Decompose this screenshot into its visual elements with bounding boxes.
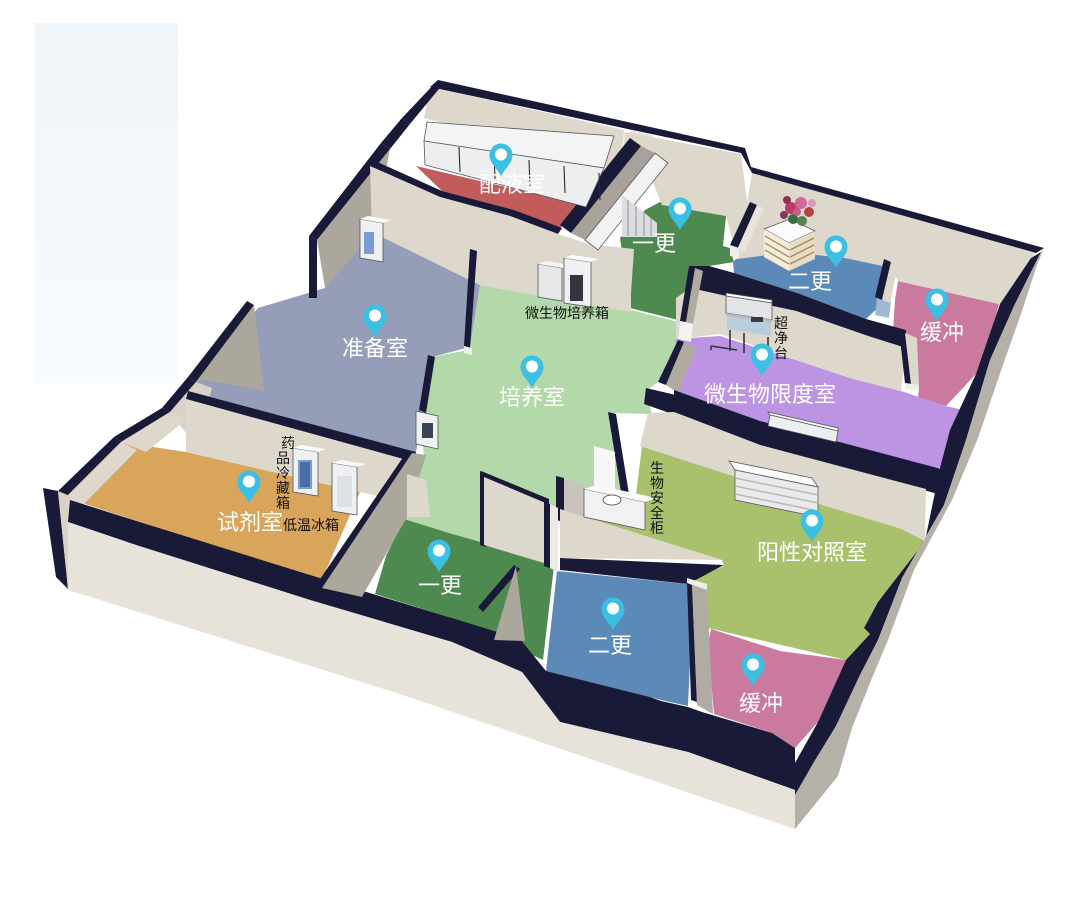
svg-text:微生物培养箱: 微生物培养箱 — [525, 306, 609, 322]
svg-text:阳性对照室: 阳性对照室 — [757, 540, 867, 565]
svg-text:试剂室: 试剂室 — [217, 510, 283, 535]
svg-text:二更: 二更 — [588, 633, 632, 658]
svg-text:一更: 一更 — [632, 231, 676, 256]
svg-text:缓冲: 缓冲 — [739, 691, 783, 716]
svg-text:一更: 一更 — [418, 573, 462, 598]
svg-text:微生物限度室: 微生物限度室 — [704, 382, 836, 407]
svg-text:超净台: 超净台 — [774, 316, 788, 362]
svg-text:二更: 二更 — [788, 269, 832, 294]
svg-text:培养室: 培养室 — [499, 385, 565, 410]
svg-text:缓冲: 缓冲 — [920, 320, 964, 345]
svg-text:准备室: 准备室 — [342, 336, 408, 361]
svg-text:配液室: 配液室 — [479, 172, 545, 197]
svg-text:低温冰箱: 低温冰箱 — [283, 518, 339, 534]
svg-text:生物安全柜: 生物安全柜 — [650, 461, 664, 537]
